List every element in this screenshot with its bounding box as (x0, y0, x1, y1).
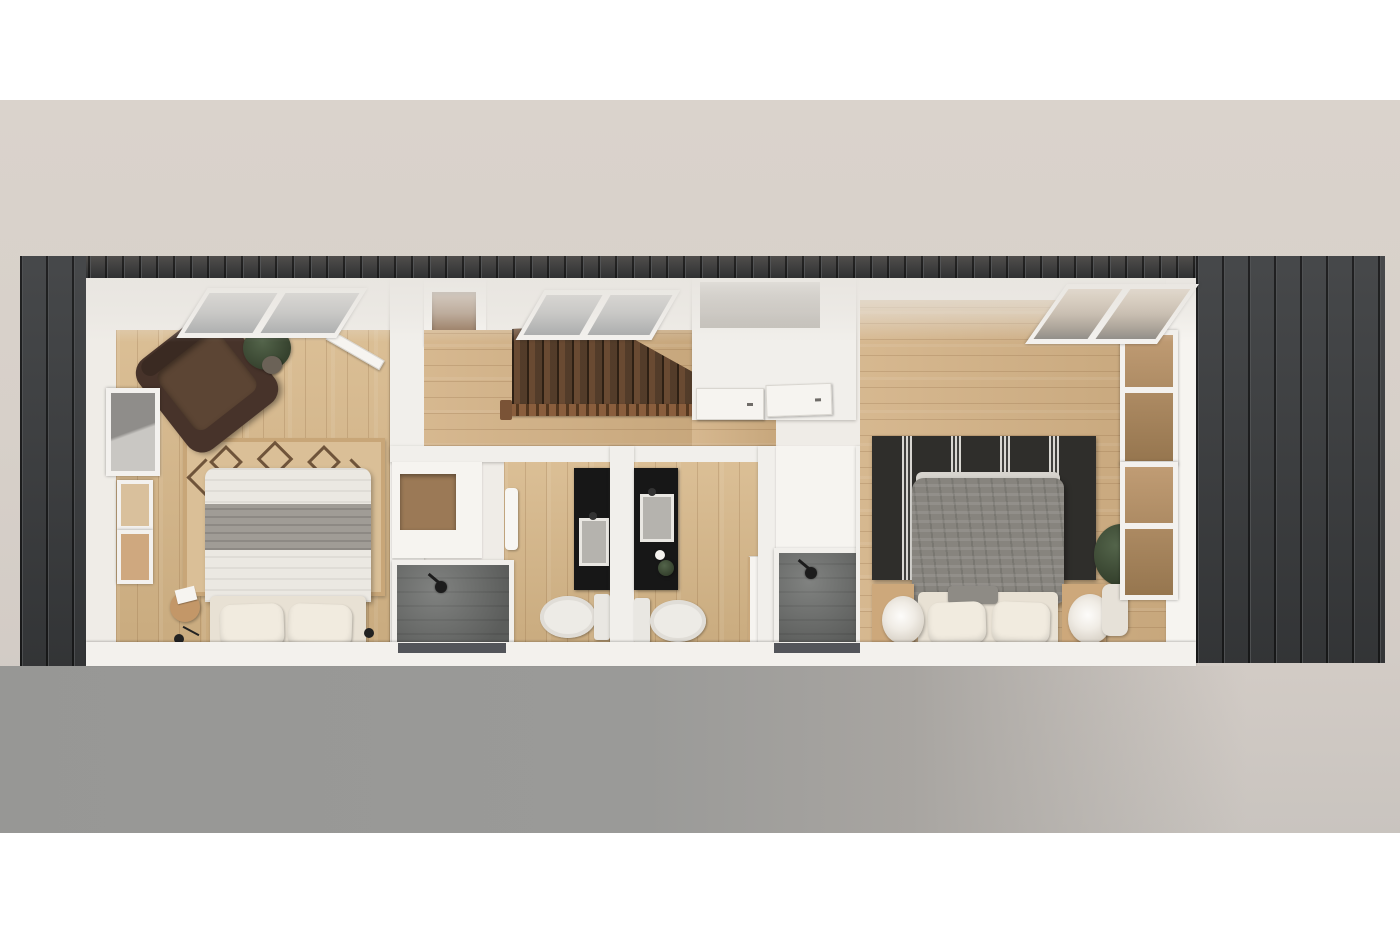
shower2-enclosure (776, 446, 860, 548)
bedroom-left-north-window (176, 288, 367, 338)
wardrobe-door (765, 383, 832, 417)
room-bathroom-1 (390, 446, 634, 644)
wall-south-cut (86, 642, 1196, 666)
plant-pot (262, 356, 282, 374)
wardrobe-door (696, 388, 764, 420)
toilet-1-tank (594, 594, 610, 640)
wall-between-bathrooms (610, 446, 634, 644)
wardrobe-interior-shadow (700, 282, 820, 328)
window-mullion (1125, 523, 1173, 529)
window-mullion (579, 295, 610, 335)
hallway-floor-east (692, 420, 776, 446)
towel-rail (505, 488, 518, 550)
building (0, 0, 1400, 933)
west-window (106, 388, 160, 476)
siding-east (1196, 256, 1385, 663)
toilet-paper-roll (655, 550, 665, 560)
walk-in-shower-1 (392, 560, 514, 654)
vanity2-sink (640, 494, 674, 542)
toilet-2 (650, 600, 706, 642)
east-window (1120, 330, 1178, 466)
vanity1-faucet-icon (589, 512, 597, 520)
bed-right-pillow (927, 601, 986, 645)
toilet-1 (540, 596, 596, 638)
linen-closet-shelf (400, 474, 456, 530)
shower2-glass-front (774, 643, 860, 653)
picture-frame (117, 530, 153, 584)
wardrobe-block (692, 278, 856, 420)
vanity-plant (658, 560, 674, 576)
window-mullion (1125, 387, 1173, 393)
room-shower (758, 446, 870, 644)
floor-plan-render (0, 0, 1400, 933)
picture-frame (117, 480, 153, 530)
room-bathroom-2 (634, 446, 760, 644)
hallway-north-window (516, 290, 681, 340)
siding-north (20, 256, 1385, 278)
shower-arm (798, 559, 811, 570)
railing-newel (500, 400, 512, 420)
round-bedside-lamp (882, 596, 924, 644)
east-window (1120, 462, 1178, 600)
toilet-2-tank (634, 598, 650, 644)
vanity1-sink (579, 518, 609, 566)
bed-left-grey-blanket (205, 504, 371, 550)
vanity2-faucet-icon (648, 488, 656, 496)
window-mullion (253, 293, 286, 333)
stair-railing (506, 404, 702, 416)
shower1-glass-front (398, 643, 506, 653)
window-mullion (1087, 289, 1130, 339)
shower-arm (428, 573, 441, 584)
reading-lamp-icon (364, 628, 374, 638)
siding-west (20, 256, 86, 666)
bed-right-pillow (991, 601, 1050, 645)
